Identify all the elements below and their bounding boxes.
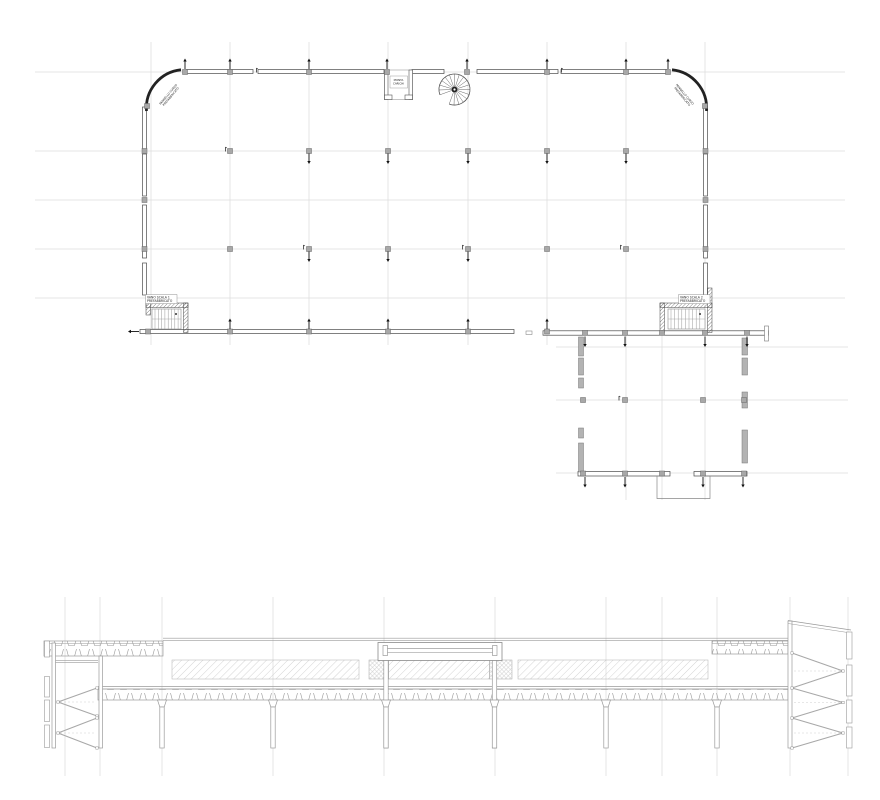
stairwell-2-label-line2: PREFABBRICATO [680,299,706,303]
section-floor-slab [98,687,788,701]
plan-load-arrows [128,59,749,488]
floor-plan: VANO SCALA 1 PREFABBRICATO VANO SCALA 2 … [35,42,848,500]
section-right-facade [788,621,852,750]
freight-elevator: MONTA CARICHI [393,78,404,86]
spiral-stair [439,74,470,105]
plan-columns [142,70,750,477]
corner-right-label: PANNELLO CURVO PREFABBRICATO [672,83,695,108]
architectural-drawing: VANO SCALA 1 PREFABBRICATO VANO SCALA 2 … [0,0,880,800]
elevator-label-line2: CARICHI [393,82,404,86]
section-penthouse [378,643,502,661]
stairwell-1: VANO SCALA 1 PREFABBRICATO [146,295,178,304]
section-parapet-hatch [172,660,708,679]
building-section [44,597,852,776]
plan-grid-lines [35,42,848,500]
corner-left-label: PANNELLO CURVO PREFABBRICATO [158,82,181,107]
stairwell-2: VANO SCALA 2 PREFABBRICATO [679,295,711,304]
stairwell-1-label-line2: PREFABBRICATO [147,299,173,303]
section-left-facade [45,641,99,749]
curved-facade-panels [146,70,706,111]
architectural-drawing-sheet: VANO SCALA 1 PREFABBRICATO VANO SCALA 2 … [0,0,880,800]
plan-walls [140,70,769,499]
plan-joint-ticks [226,68,622,401]
